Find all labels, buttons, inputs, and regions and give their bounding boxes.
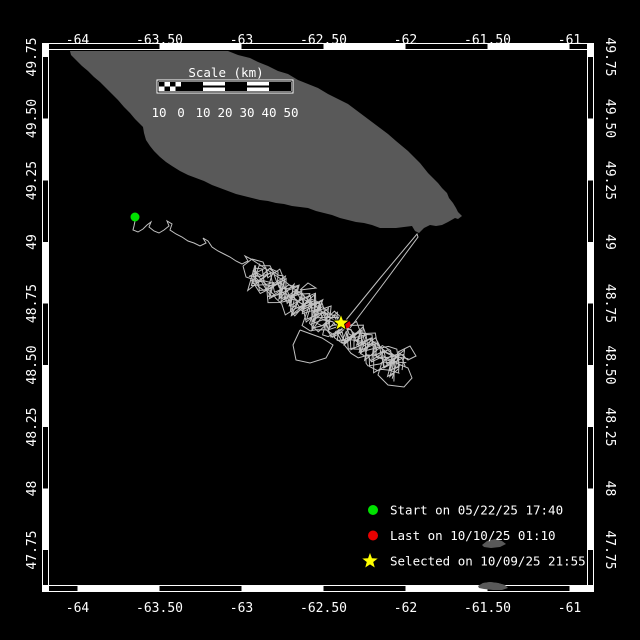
- track-map-window: -64-64-63.50-63.50-63-63-62.50-62.50-62-…: [0, 0, 640, 640]
- scalebar-title: Scale (km): [188, 65, 263, 80]
- frame-checker-segment: [588, 550, 593, 585]
- y-axis-label-right: 49.50: [602, 99, 617, 138]
- scalebar-tick-label: 40: [261, 105, 276, 120]
- x-axis-label-top: -61.50: [464, 33, 511, 48]
- x-axis-label-top: -63: [230, 33, 253, 48]
- scalebar-check-cell: [170, 82, 176, 87]
- y-axis-label-left: 48.50: [25, 345, 40, 384]
- y-axis-label-right: 48: [602, 481, 617, 497]
- frame-checker-segment: [43, 427, 48, 489]
- y-axis-label-left: 49: [25, 234, 40, 250]
- legend-item-label: Start on 05/22/25 17:40: [390, 503, 563, 518]
- x-axis-label-bottom: -62.50: [300, 601, 347, 616]
- y-axis-label-right: 48.75: [602, 284, 617, 323]
- y-axis-label-right: 47.75: [602, 530, 617, 569]
- y-axis-label-right: 48.25: [602, 407, 617, 446]
- legend-start-marker-icon: [368, 505, 378, 515]
- y-axis-label-left: 49.75: [25, 37, 40, 76]
- x-axis-label-top: -62.50: [300, 33, 347, 48]
- scalebar-black-segment: [225, 82, 247, 91]
- scalebar-tick-label: 20: [217, 105, 232, 120]
- x-axis-label-bottom: -63: [230, 601, 253, 616]
- y-axis-label-right: 48.50: [602, 345, 617, 384]
- scalebar-check-cell: [165, 87, 171, 92]
- y-axis-label-left: 48.75: [25, 284, 40, 323]
- scalebar-check-cell: [176, 87, 182, 92]
- x-axis-label-bottom: -62: [394, 601, 417, 616]
- frame-checker-segment: [49, 586, 78, 591]
- frame-checker-segment: [588, 427, 593, 489]
- scalebar-tick-label: 10: [195, 105, 210, 120]
- x-axis-label-top: -62: [394, 33, 417, 48]
- scalebar-check-cell: [159, 82, 165, 87]
- legend-item-label: Selected on 10/09/25 21:55: [390, 554, 586, 569]
- frame-checker-segment: [588, 57, 593, 119]
- y-axis-label-left: 48: [25, 481, 40, 497]
- y-axis-label-left: 49.50: [25, 99, 40, 138]
- start-position-marker[interactable]: [131, 213, 140, 222]
- x-axis-label-bottom: -63.50: [136, 601, 183, 616]
- frame-checker-segment: [43, 550, 48, 585]
- x-axis-label-bottom: -61: [558, 601, 581, 616]
- frame-checker-segment: [160, 586, 242, 591]
- x-axis-label-top: -64: [66, 33, 90, 48]
- legend-item-label: Last on 10/10/25 01:10: [390, 528, 556, 543]
- y-axis-label-right: 49: [602, 234, 617, 250]
- y-axis-label-right: 49.25: [602, 161, 617, 200]
- y-axis-label-left: 49.25: [25, 161, 40, 200]
- frame-checker-segment: [588, 181, 593, 243]
- scalebar-midline-segment: [247, 86, 269, 88]
- x-axis-label-top: -61: [558, 33, 581, 48]
- scalebar-midline-segment: [203, 86, 225, 88]
- frame-checker-segment: [43, 181, 48, 243]
- map-svg[interactable]: -64-64-63.50-63.50-63-63-62.50-62.50-62-…: [0, 0, 640, 640]
- y-axis-label-left: 48.25: [25, 407, 40, 446]
- frame-checker-segment: [588, 304, 593, 366]
- frame-checker-segment: [324, 586, 406, 591]
- frame-checker-segment: [43, 57, 48, 119]
- scalebar-tick-label: 30: [239, 105, 254, 120]
- legend-last-marker-icon: [368, 531, 378, 541]
- y-axis-label-left: 47.75: [25, 530, 40, 569]
- scalebar-tick-label: 10: [151, 105, 166, 120]
- x-axis-label-bottom: -61.50: [464, 601, 511, 616]
- scalebar-black-segment: [181, 82, 203, 91]
- scalebar-black-segment: [269, 82, 291, 91]
- frame-checker-segment: [43, 304, 48, 366]
- x-axis-label-top: -63.50: [136, 33, 183, 48]
- y-axis-label-right: 49.75: [602, 37, 617, 76]
- scalebar-tick-label: 0: [177, 105, 185, 120]
- x-axis-label-bottom: -64: [66, 601, 90, 616]
- scalebar-tick-label: 50: [283, 105, 298, 120]
